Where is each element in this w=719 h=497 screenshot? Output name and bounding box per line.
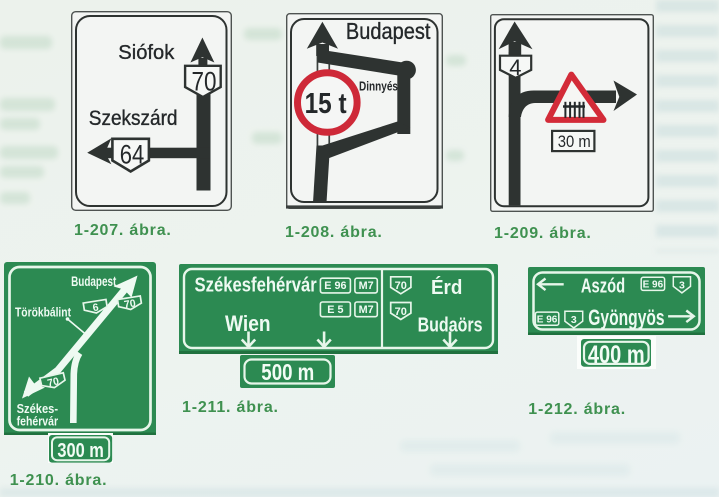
- svg-text:Érd: Érd: [431, 276, 462, 299]
- svg-text:Szekszárd: Szekszárd: [88, 107, 177, 130]
- svg-text:3: 3: [571, 314, 577, 326]
- svg-text:70: 70: [395, 306, 407, 318]
- svg-text:M7: M7: [359, 280, 374, 292]
- svg-text:70: 70: [395, 280, 407, 292]
- svg-text:Törökbálint: Törökbálint: [15, 306, 72, 320]
- svg-text:70: 70: [191, 66, 216, 96]
- svg-text:300 m: 300 m: [58, 439, 104, 462]
- svg-text:E 96: E 96: [643, 280, 664, 291]
- svg-text:3: 3: [679, 279, 685, 291]
- svg-text:Székesfehérvár: Székesfehérvár: [195, 275, 317, 297]
- svg-text:15 t: 15 t: [305, 88, 347, 120]
- svg-text:70: 70: [123, 297, 137, 311]
- svg-text:500 m: 500 m: [261, 359, 314, 385]
- svg-text:Dinnyés: Dinnyés: [359, 79, 398, 94]
- svg-text:E 96: E 96: [537, 314, 558, 325]
- svg-text:Budapest: Budapest: [71, 274, 117, 289]
- svg-text:Budapest: Budapest: [346, 18, 431, 44]
- svg-text:64: 64: [119, 140, 144, 170]
- svg-text:E 5: E 5: [327, 304, 343, 316]
- svg-text:4: 4: [509, 54, 521, 79]
- svg-text:Gyöngyös: Gyöngyös: [588, 305, 664, 330]
- svg-text:30 m: 30 m: [558, 132, 591, 151]
- svg-text:fehérvár: fehérvár: [17, 415, 59, 429]
- svg-text:Aszód: Aszód: [581, 274, 625, 297]
- svg-text:E 96: E 96: [324, 280, 346, 292]
- svg-text:Siófok: Siófok: [118, 42, 175, 64]
- svg-text:400 m: 400 m: [588, 341, 645, 367]
- svg-text:M7: M7: [359, 304, 374, 316]
